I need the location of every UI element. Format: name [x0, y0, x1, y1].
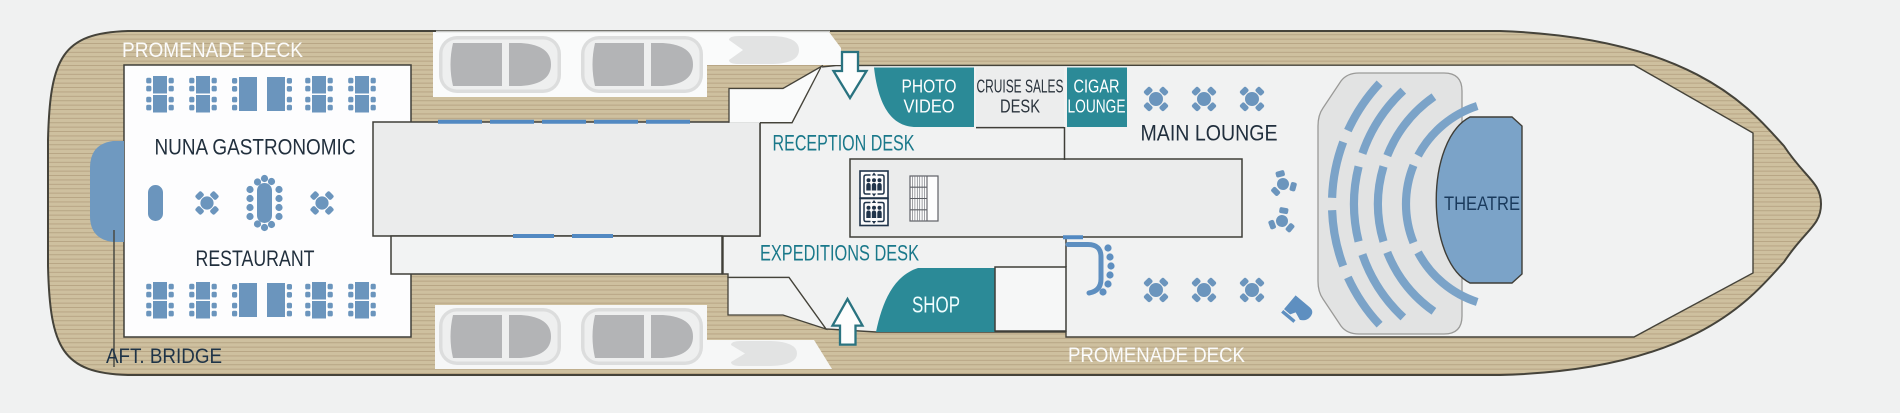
svg-text:MAIN LOUNGE: MAIN LOUNGE — [1141, 121, 1278, 146]
svg-text:NUNA GASTRONOMIC: NUNA GASTRONOMIC — [155, 135, 356, 160]
svg-text:AFT. BRIDGE: AFT. BRIDGE — [106, 344, 222, 368]
svg-text:PROMENADE DECK: PROMENADE DECK — [1068, 343, 1246, 367]
svg-text:VIDEO: VIDEO — [904, 97, 955, 117]
svg-text:CRUISE SALES: CRUISE SALES — [977, 77, 1064, 97]
svg-text:PROMENADE DECK: PROMENADE DECK — [122, 38, 304, 62]
svg-text:PHOTO: PHOTO — [902, 77, 957, 97]
svg-text:SHOP: SHOP — [912, 292, 960, 318]
svg-text:RECEPTION DESK: RECEPTION DESK — [773, 131, 915, 156]
svg-text:EXPEDITIONS DESK: EXPEDITIONS DESK — [760, 241, 919, 266]
svg-text:THEATRE: THEATRE — [1444, 193, 1520, 215]
svg-text:LOUNGE: LOUNGE — [1068, 97, 1126, 117]
svg-text:RESTAURANT: RESTAURANT — [196, 246, 315, 271]
svg-text:DESK: DESK — [1000, 97, 1040, 117]
svg-text:CIGAR: CIGAR — [1074, 77, 1120, 97]
